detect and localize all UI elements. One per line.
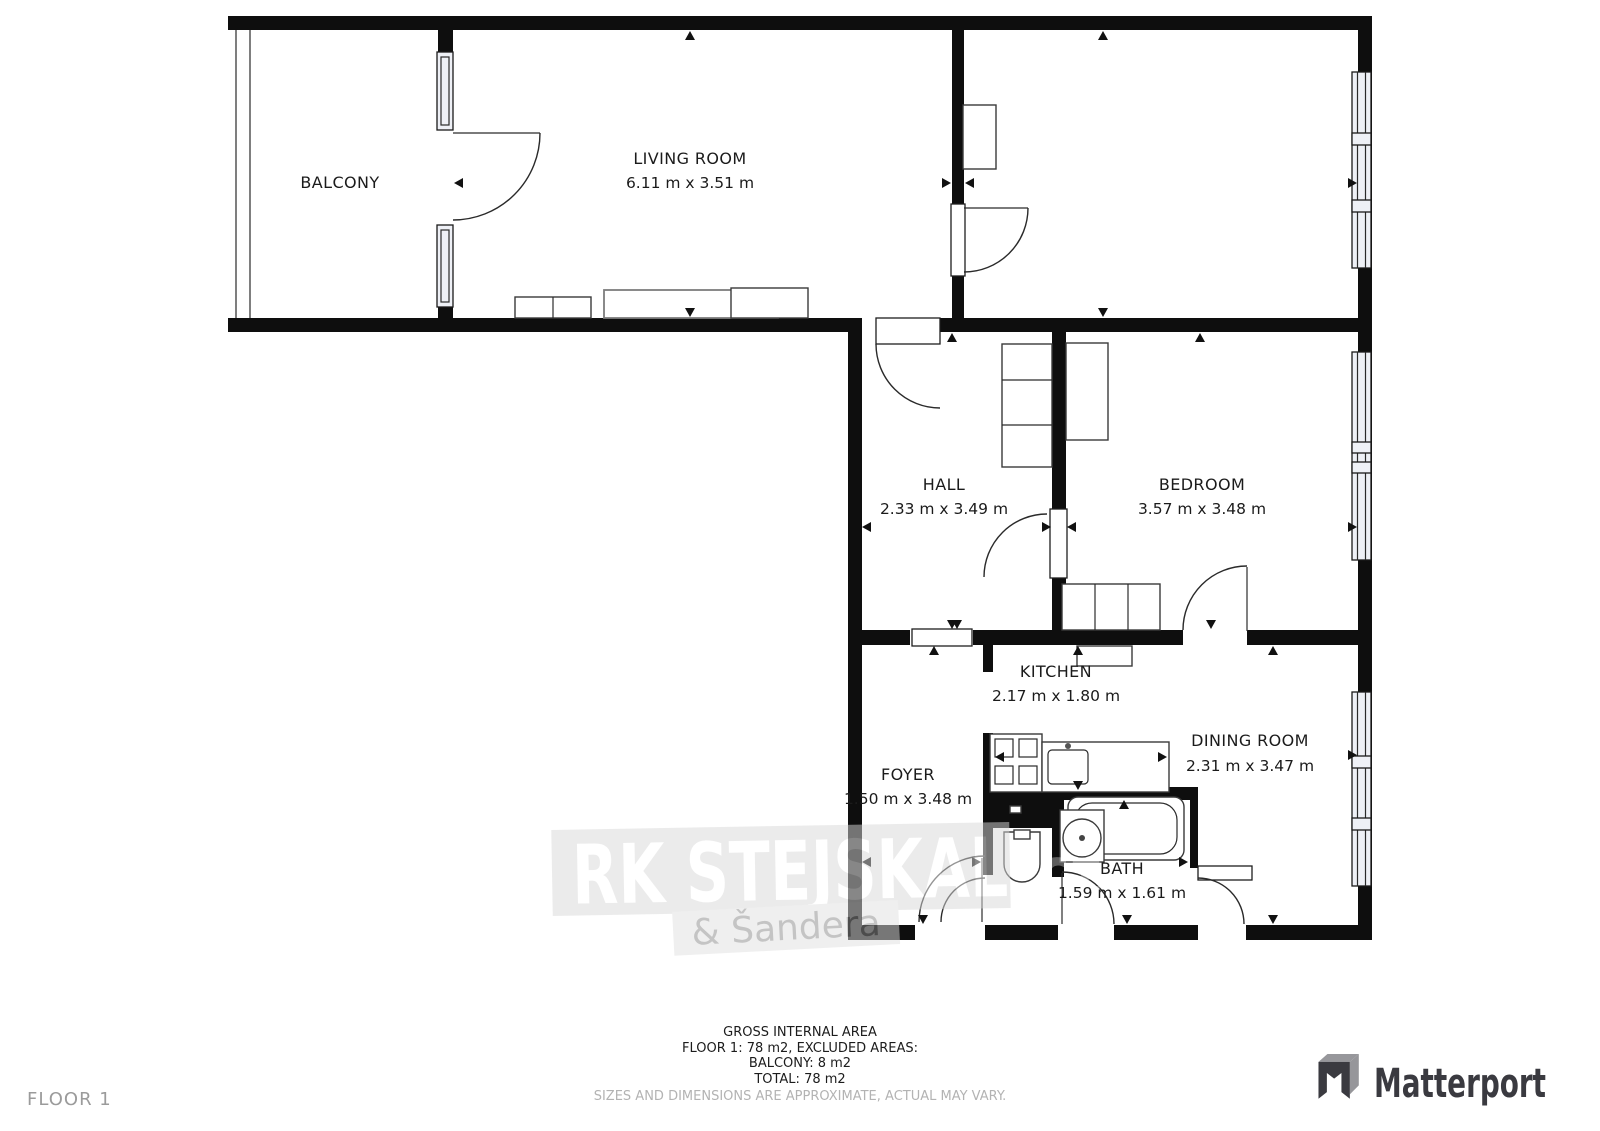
room-label-kitchen: KITCHEN [1020, 662, 1092, 681]
measure-arrow [1098, 31, 1108, 40]
wall-bath-dining-divider [1190, 793, 1198, 868]
room-dims-foyer: 1.50 m x 3.48 m [844, 790, 972, 808]
footer-disclaimer: SIZES AND DIMENSIONS ARE APPROXIMATE, AC… [594, 1089, 1007, 1104]
opening-bath-entry [1058, 925, 1114, 940]
window-mullion [1352, 133, 1371, 145]
room-dims-living-room: 6.11 m x 3.51 m [626, 174, 754, 192]
measure-arrow [1179, 857, 1188, 867]
footer-balcony-area: BALCONY: 8 m2 [749, 1056, 851, 1071]
window-mullion [1352, 462, 1371, 473]
window-bedroom [1352, 352, 1371, 560]
opening-bedroom-dining [1183, 630, 1247, 645]
room-label-hall: HALL [923, 475, 965, 494]
window-mullion [1352, 818, 1371, 830]
door-leaf-bedroom-hall [1050, 509, 1067, 578]
measure-arrow [965, 178, 974, 188]
window-mullion [1352, 442, 1371, 453]
door-leaf-dining [1198, 866, 1252, 880]
footer-total-area: TOTAL: 78 m2 [753, 1072, 845, 1087]
door-arc-living-hall [876, 344, 940, 408]
measure-arrow [1067, 522, 1076, 532]
window-dining [1352, 692, 1371, 886]
footer-floor-area: FLOOR 1: 78 m2, EXCLUDED AREAS: [682, 1041, 918, 1056]
logo-m-glyph [1318, 1062, 1349, 1099]
measure-arrow [454, 178, 463, 188]
toilet-flush-button [1010, 806, 1021, 813]
opening-balcony-door [438, 130, 453, 225]
room-label-bedroom: BEDROOM [1159, 475, 1245, 494]
door-arc-bedroom-hall [984, 514, 1047, 577]
room-dims-bedroom: 3.57 m x 3.48 m [1138, 500, 1266, 518]
measure-arrow [1122, 915, 1132, 924]
window-mullion [1352, 200, 1371, 212]
measure-arrow [929, 646, 939, 655]
bedroom-wardrobe [1066, 343, 1108, 440]
measure-arrow [685, 31, 695, 40]
measure-arrow [942, 178, 951, 188]
door-arc-room2 [964, 208, 1028, 272]
measure-arrow [947, 333, 957, 342]
door-leaf-room2 [951, 204, 965, 276]
measure-arrow [1268, 915, 1278, 924]
bedroom-wardrobe-low [1062, 584, 1160, 630]
floor-plan-page: RK STEJSKAL .cz & Šandera BALCONY LIVING… [0, 0, 1600, 1131]
room-label-foyer: FOYER [881, 765, 935, 784]
footer-summary: GROSS INTERNAL AREA FLOOR 1: 78 m2, EXCL… [594, 1025, 1007, 1104]
wall-kitchen-left-upper [983, 645, 993, 672]
room-label-balcony: BALCONY [300, 173, 379, 192]
room-dims-dining-room: 2.31 m x 3.47 m [1186, 757, 1314, 775]
door-leaf-hall-foyer [912, 629, 972, 646]
window-mullion [1352, 756, 1371, 768]
door-arc-dining [1198, 878, 1244, 924]
room-label-living-room: LIVING ROOM [633, 149, 746, 168]
matterport-logo-icon [1318, 1054, 1358, 1099]
room-label-bath: BATH [1100, 859, 1144, 878]
floor-plan-svg: RK STEJSKAL .cz & Šandera BALCONY LIVING… [0, 0, 1600, 1131]
kitchen-faucet [1065, 743, 1071, 749]
window-room2 [1352, 72, 1371, 268]
wall-top [228, 16, 1372, 30]
wall-mid-horizontal [228, 318, 1372, 332]
window-living-balcony-2 [437, 225, 453, 307]
hall-cabinet [1002, 344, 1052, 467]
measure-arrow [1206, 620, 1216, 629]
room-dims-kitchen: 2.17 m x 1.80 m [992, 687, 1120, 705]
window-living-balcony-1 [437, 52, 453, 130]
door-leaf-living-hall [876, 318, 940, 344]
footer-gross-area-title: GROSS INTERNAL AREA [723, 1025, 877, 1040]
floor-number-label: FLOOR 1 [27, 1089, 112, 1110]
kitchen-stove [990, 734, 1042, 792]
room2-cabinet [963, 105, 996, 169]
opening-dining-entry [1198, 925, 1246, 940]
opening-foyer-entry [915, 925, 985, 940]
living-sideboard [731, 288, 808, 318]
measure-arrow [1268, 646, 1278, 655]
measure-arrow [862, 522, 871, 532]
matterport-wordmark: Matterport [1374, 1061, 1546, 1107]
room-dims-hall: 2.33 m x 3.49 m [880, 500, 1008, 518]
room-label-dining-room: DINING ROOM [1191, 731, 1309, 750]
matterport-logo: Matterport [1318, 1054, 1546, 1107]
measure-arrow [1195, 333, 1205, 342]
door-arc-balcony [453, 133, 540, 220]
measure-arrow [1098, 308, 1108, 317]
room-dims-bath: 1.59 m x 1.61 m [1058, 884, 1186, 902]
